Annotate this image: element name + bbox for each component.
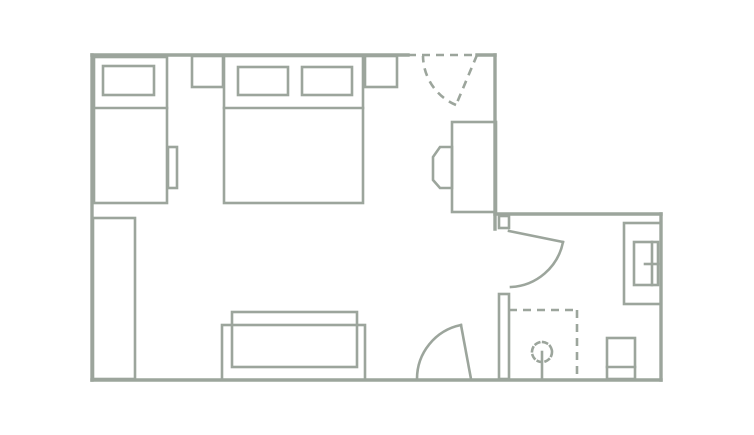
entrance-door-dashed <box>408 55 477 105</box>
room-door <box>417 325 471 379</box>
single-bed <box>94 57 177 203</box>
double-bed <box>224 56 363 203</box>
nightstand-right <box>365 56 397 87</box>
toilet <box>607 338 635 379</box>
floor-plan <box>0 0 754 435</box>
bathroom-vanity-sink <box>624 223 661 304</box>
sofa <box>222 312 365 380</box>
desk <box>452 122 496 212</box>
bathroom-door <box>509 231 563 287</box>
nightstand-left <box>192 56 223 87</box>
bathroom-partition-wall <box>499 216 509 379</box>
exterior-walls <box>92 55 661 380</box>
floor-plan-drawing <box>0 0 754 435</box>
shower-head <box>532 342 552 379</box>
desk-chair <box>433 147 452 188</box>
wardrobe <box>93 218 135 379</box>
